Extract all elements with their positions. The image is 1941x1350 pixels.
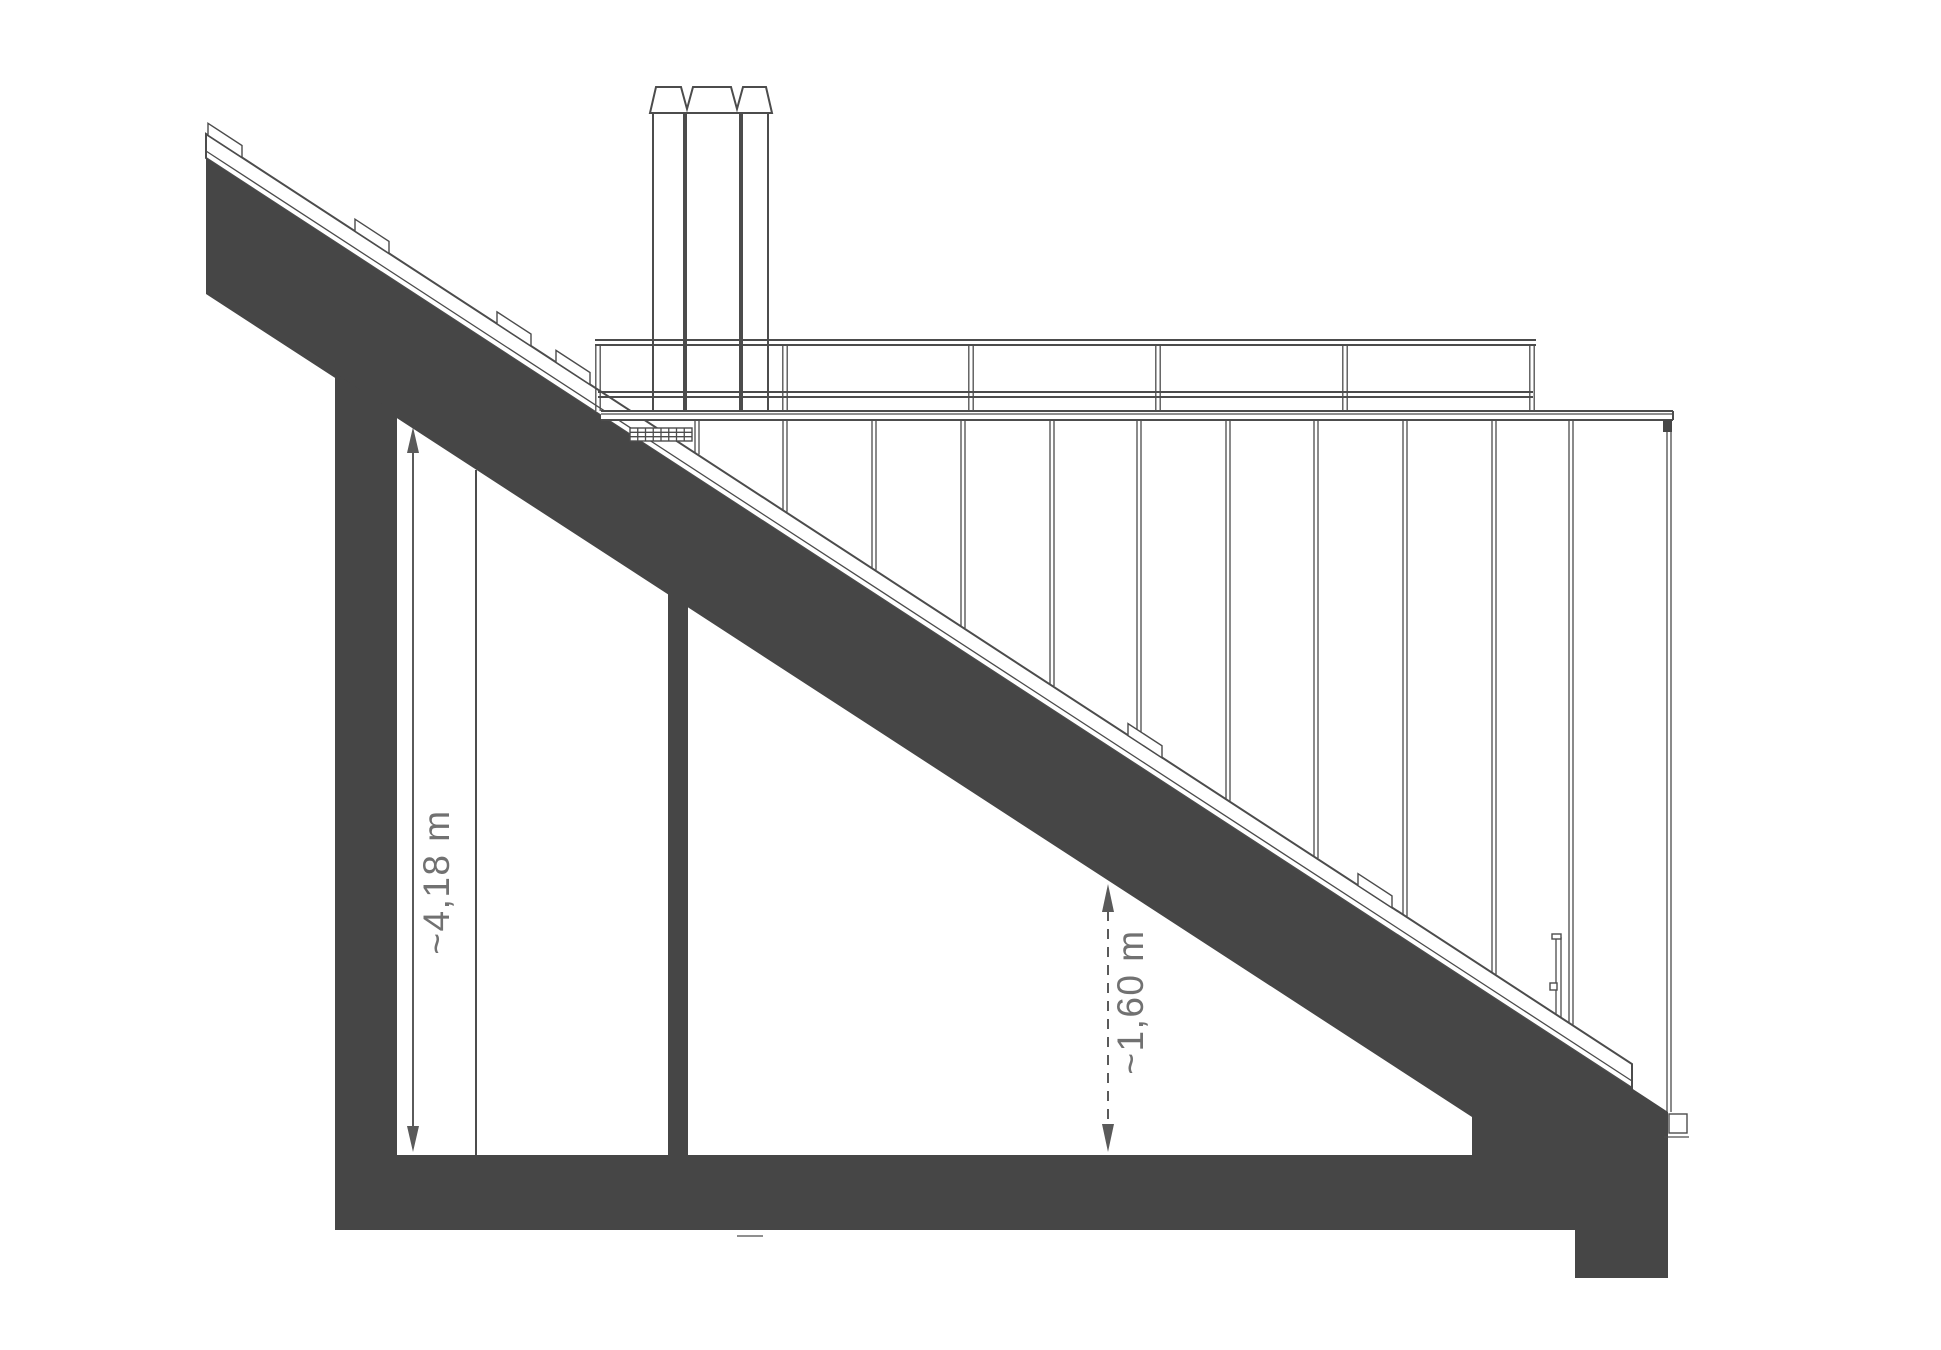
deck-edge-bracket: [1663, 420, 1672, 432]
chimney: [650, 87, 772, 417]
arrow-down-icon: [1102, 1124, 1114, 1152]
ventilation-grille: [630, 428, 692, 441]
chimney-cap: [650, 87, 772, 113]
dimension-height-left: ~4,18 m: [407, 427, 457, 1152]
arrow-up-icon: [1102, 884, 1114, 912]
chimney-flue-middle: [686, 113, 740, 417]
floor-slab: [335, 1155, 1575, 1230]
dimension-clearance-middle: ~1,60 m: [1102, 884, 1151, 1152]
chimney-flue-left: [653, 113, 684, 417]
arrow-down-icon: [407, 1126, 419, 1152]
dimension-label-left: ~4,18 m: [416, 809, 457, 954]
left-wall: [335, 373, 397, 1230]
middle-column: [668, 592, 688, 1155]
roof-slab-and-right-wall: [206, 158, 1668, 1278]
section-drawing-canvas: ~4,18 m ~1,60 m: [0, 0, 1941, 1350]
dimension-label-middle: ~1,60 m: [1110, 929, 1151, 1074]
chimney-flue-right: [742, 113, 768, 417]
